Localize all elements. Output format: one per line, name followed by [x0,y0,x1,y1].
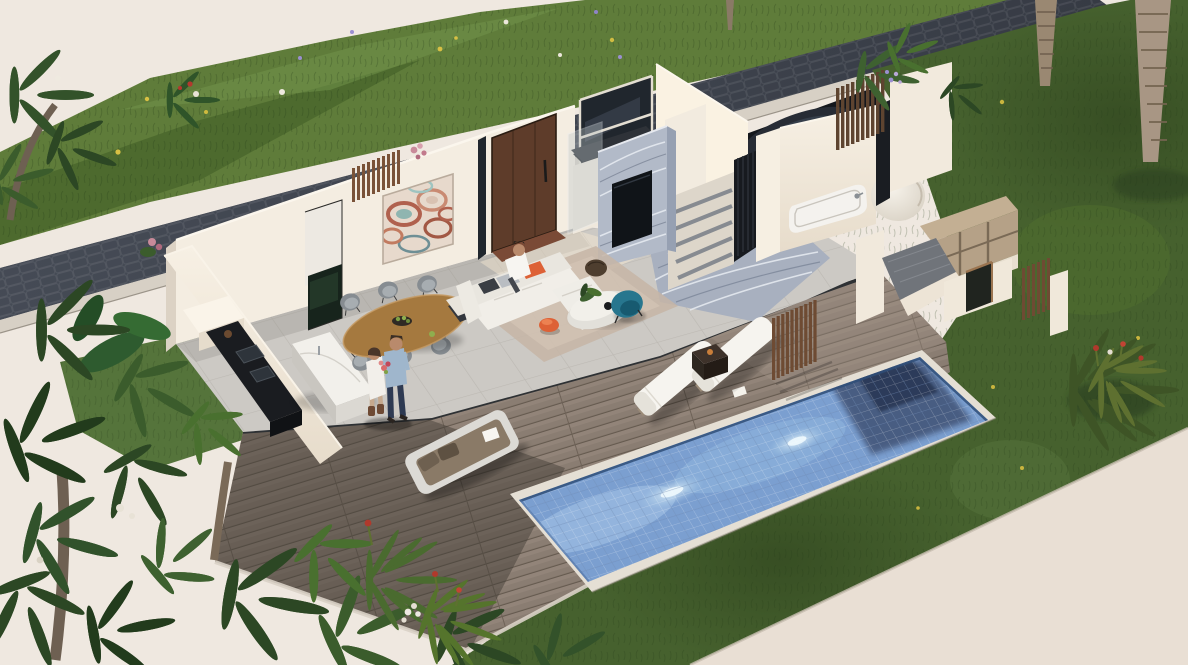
architectural-render [0,0,1188,665]
marble-tv-panel [598,126,676,268]
glass-balustrade [568,122,602,234]
shower-wall [856,230,884,324]
fireplace-niche [305,200,342,330]
bathroom-partition [756,128,780,262]
